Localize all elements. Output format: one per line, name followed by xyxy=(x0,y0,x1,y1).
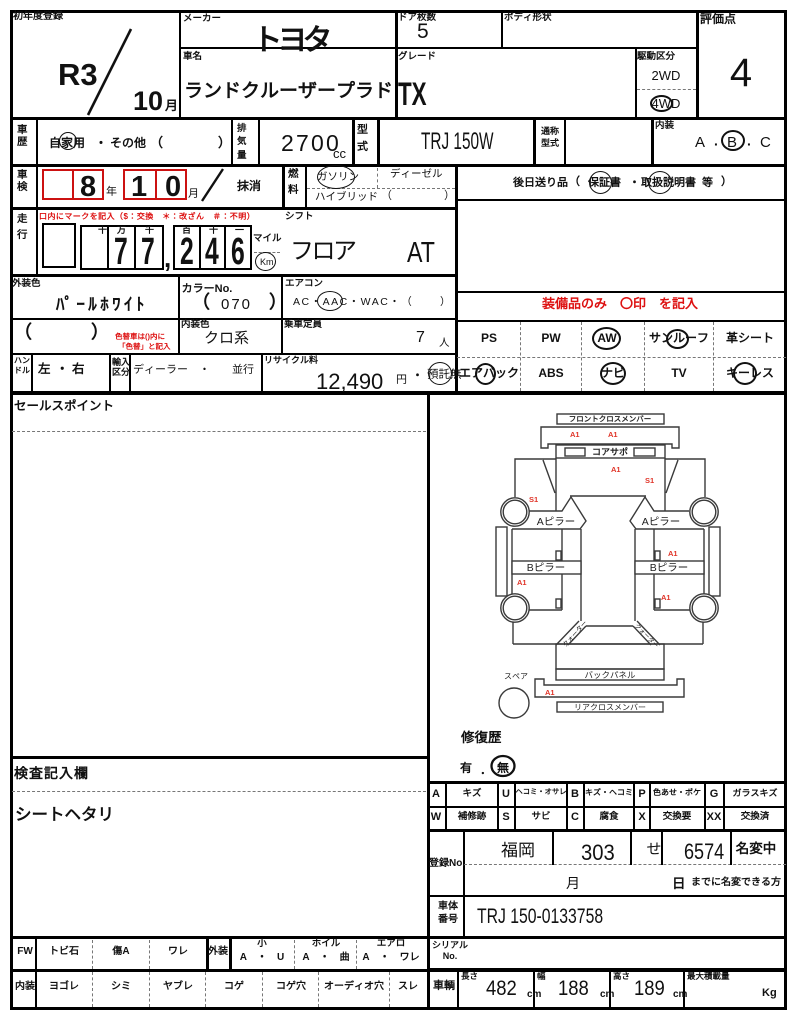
svg-text:修復歴: 修復歴 xyxy=(460,730,502,745)
svg-text:A1: A1 xyxy=(517,578,527,587)
svg-text:コアサポ: コアサポ xyxy=(592,447,628,457)
svg-text:Bピラー: Bピラー xyxy=(527,562,566,574)
svg-text:Bピラー: Bピラー xyxy=(650,562,689,574)
svg-text:Aピラー: Aピラー xyxy=(642,516,681,528)
svg-text:スペア: スペア xyxy=(504,672,528,681)
svg-text:バックパネル: バックパネル xyxy=(584,670,636,680)
svg-text:リアクロスメンバー: リアクロスメンバー xyxy=(574,703,646,712)
svg-text:フロントクロスメンバー: フロントクロスメンバー xyxy=(569,415,652,424)
svg-text:A1: A1 xyxy=(608,430,618,439)
svg-text:有: 有 xyxy=(460,761,472,775)
svg-text:．: ． xyxy=(480,763,492,777)
svg-text:A1: A1 xyxy=(661,593,671,602)
svg-text:A1: A1 xyxy=(545,688,555,697)
svg-text:S1: S1 xyxy=(529,495,538,504)
svg-text:A1: A1 xyxy=(611,465,621,474)
svg-text:A1: A1 xyxy=(668,549,678,558)
svg-text:クォーター: クォーター xyxy=(633,622,660,650)
svg-text:無: 無 xyxy=(497,761,509,775)
svg-text:A1: A1 xyxy=(570,430,580,439)
svg-text:S1: S1 xyxy=(645,476,654,485)
svg-text:Aピラー: Aピラー xyxy=(537,516,576,528)
